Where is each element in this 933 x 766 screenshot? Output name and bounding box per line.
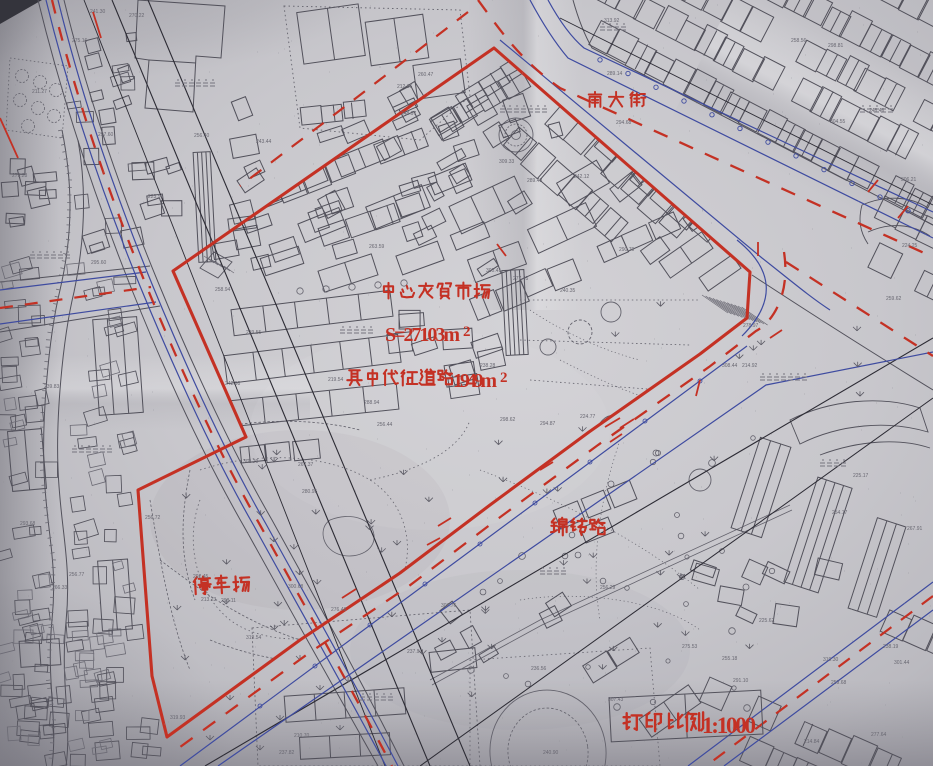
svg-text:237.82: 237.82 bbox=[279, 750, 295, 756]
svg-text:241.30: 241.30 bbox=[90, 9, 106, 15]
svg-text:242.12: 242.12 bbox=[574, 174, 590, 180]
svg-text:256.72: 256.72 bbox=[145, 515, 161, 521]
svg-text:211.27: 211.27 bbox=[32, 89, 47, 95]
svg-text:240.90: 240.90 bbox=[543, 750, 559, 756]
svg-text:214.92: 214.92 bbox=[742, 363, 758, 369]
svg-text:240.35: 240.35 bbox=[560, 288, 576, 294]
svg-text:259.62: 259.62 bbox=[886, 296, 902, 302]
svg-text:254.17: 254.17 bbox=[832, 510, 848, 516]
svg-text:256.77: 256.77 bbox=[69, 572, 85, 578]
svg-text:1:1000: 1:1000 bbox=[702, 713, 756, 738]
svg-text:306.21: 306.21 bbox=[901, 177, 917, 183]
svg-text:294.87: 294.87 bbox=[540, 421, 556, 427]
svg-text:258.94: 258.94 bbox=[215, 287, 231, 293]
svg-text:236.56: 236.56 bbox=[531, 666, 547, 672]
svg-text:267.91: 267.91 bbox=[907, 526, 923, 532]
svg-text:291.10: 291.10 bbox=[733, 678, 749, 684]
svg-text:260.47: 260.47 bbox=[418, 72, 434, 78]
svg-text:238.19: 238.19 bbox=[883, 644, 899, 650]
svg-text:292.45: 292.45 bbox=[193, 574, 209, 580]
svg-text:300.68: 300.68 bbox=[288, 584, 304, 590]
svg-text:259.68: 259.68 bbox=[831, 680, 847, 686]
svg-text:243.44: 243.44 bbox=[256, 139, 272, 145]
svg-text:297.60: 297.60 bbox=[98, 132, 114, 138]
svg-text:266.33: 266.33 bbox=[52, 585, 68, 591]
svg-text:309.33: 309.33 bbox=[499, 159, 515, 165]
svg-text:223.56: 223.56 bbox=[148, 194, 164, 200]
svg-text:239.55: 239.55 bbox=[246, 330, 262, 336]
svg-text:258.56: 258.56 bbox=[791, 38, 807, 44]
svg-text:248.97: 248.97 bbox=[401, 111, 417, 117]
svg-text:1949m: 1949m bbox=[453, 370, 497, 392]
svg-text:307.43: 307.43 bbox=[608, 697, 624, 703]
svg-text:277.45: 277.45 bbox=[513, 276, 529, 282]
svg-text:255.18: 255.18 bbox=[722, 656, 738, 662]
svg-text:276.48: 276.48 bbox=[331, 607, 347, 613]
svg-text:301.44: 301.44 bbox=[894, 660, 910, 666]
svg-text:224.25: 224.25 bbox=[902, 243, 918, 249]
svg-text:288.94: 288.94 bbox=[364, 400, 380, 406]
svg-text:319.93: 319.93 bbox=[170, 715, 186, 721]
svg-text:224.77: 224.77 bbox=[580, 414, 596, 420]
svg-text:300.41: 300.41 bbox=[486, 268, 502, 274]
svg-text:238.28: 238.28 bbox=[480, 363, 496, 369]
svg-text:2: 2 bbox=[463, 324, 471, 340]
svg-text:304.55: 304.55 bbox=[830, 119, 846, 125]
svg-text:319.54: 319.54 bbox=[246, 635, 262, 641]
svg-text:294.68: 294.68 bbox=[616, 120, 632, 126]
svg-text:213.23: 213.23 bbox=[201, 597, 217, 603]
svg-text:279.28: 279.28 bbox=[12, 173, 28, 179]
svg-text:239.83: 239.83 bbox=[44, 384, 60, 390]
svg-text:256.40: 256.40 bbox=[194, 133, 210, 139]
svg-text:278.97: 278.97 bbox=[743, 323, 759, 329]
svg-text:214.84: 214.84 bbox=[804, 739, 820, 745]
svg-text:304.29: 304.29 bbox=[243, 459, 259, 465]
svg-text:308.44: 308.44 bbox=[722, 363, 738, 369]
svg-text:319.30: 319.30 bbox=[823, 657, 839, 663]
svg-text:290.79: 290.79 bbox=[619, 247, 635, 253]
svg-text:219.54: 219.54 bbox=[328, 377, 344, 383]
svg-text:225.62: 225.62 bbox=[759, 618, 775, 624]
svg-text:242.98: 242.98 bbox=[225, 381, 241, 387]
svg-text:313.92: 313.92 bbox=[604, 18, 620, 24]
svg-text:256.44: 256.44 bbox=[377, 422, 393, 428]
svg-text:298.62: 298.62 bbox=[500, 417, 516, 423]
svg-text:270.22: 270.22 bbox=[129, 13, 145, 19]
svg-text:295.60: 295.60 bbox=[91, 260, 107, 266]
svg-text:275.53: 275.53 bbox=[682, 644, 698, 650]
svg-text:263.59: 263.59 bbox=[369, 244, 385, 250]
svg-text:289.14: 289.14 bbox=[607, 71, 623, 77]
svg-text:2: 2 bbox=[500, 370, 508, 386]
svg-text:210.70: 210.70 bbox=[294, 733, 310, 739]
svg-text:275.16: 275.16 bbox=[72, 38, 88, 44]
svg-text:212.16: 212.16 bbox=[397, 84, 413, 90]
svg-text:277.64: 277.64 bbox=[871, 732, 887, 738]
svg-text:267.37: 267.37 bbox=[298, 462, 314, 468]
svg-text:298.81: 298.81 bbox=[828, 43, 844, 49]
svg-text:307.76: 307.76 bbox=[441, 603, 457, 609]
svg-text:225.17: 225.17 bbox=[853, 473, 869, 479]
svg-text:S=27103m: S=27103m bbox=[385, 324, 460, 346]
svg-text:293.68: 293.68 bbox=[20, 521, 36, 527]
svg-text:256.29: 256.29 bbox=[600, 585, 616, 591]
svg-text:280.95: 280.95 bbox=[302, 489, 318, 495]
